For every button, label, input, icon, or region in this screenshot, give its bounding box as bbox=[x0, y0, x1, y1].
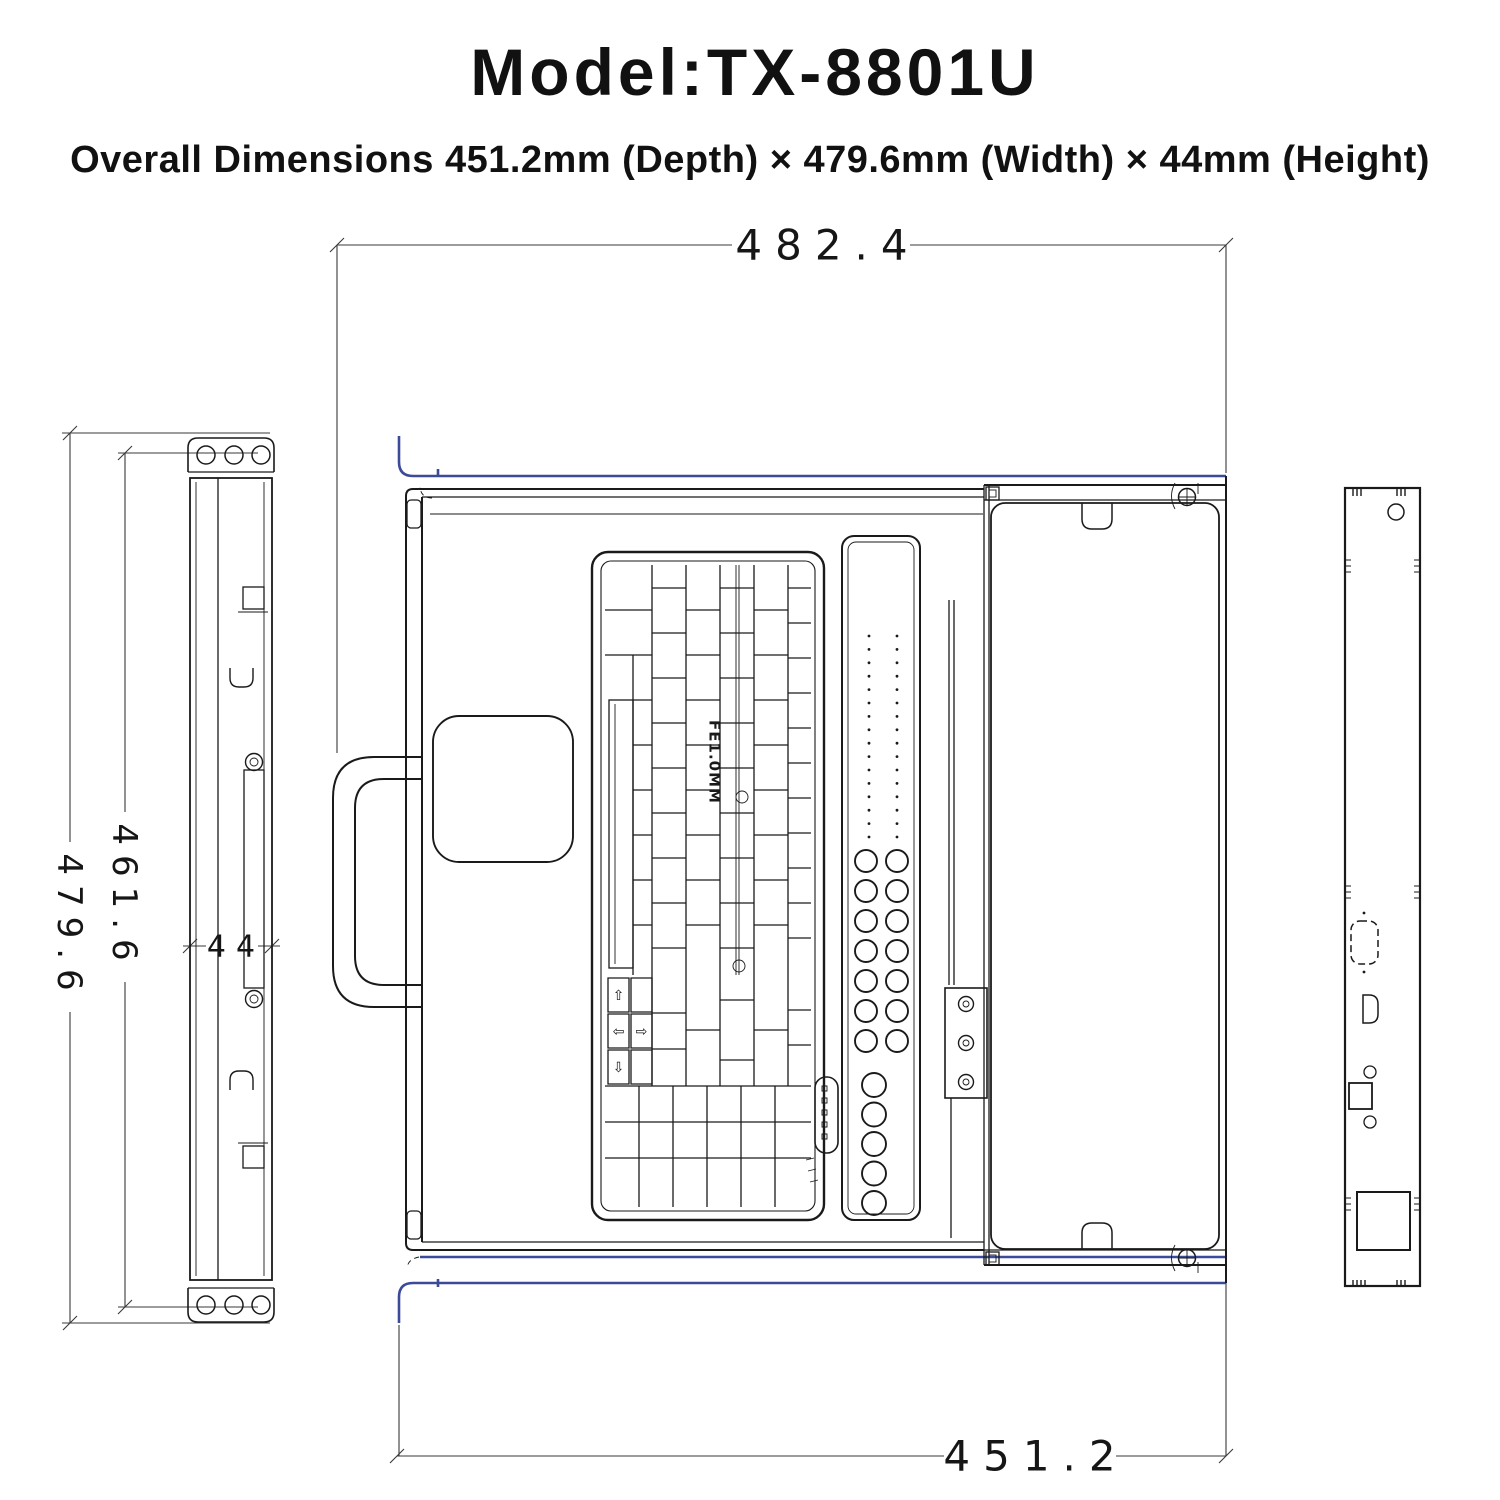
led-dot bbox=[868, 648, 871, 651]
space-bar-key bbox=[609, 700, 633, 968]
dimension-label-height-inner: 461.6 bbox=[104, 823, 144, 970]
select-button[interactable] bbox=[886, 910, 908, 932]
led-dot bbox=[896, 755, 899, 758]
touchpad[interactable] bbox=[433, 716, 573, 862]
select-button[interactable] bbox=[855, 850, 877, 872]
inner-rail-edge bbox=[949, 600, 954, 1238]
led-dot bbox=[868, 822, 871, 825]
handle-inner bbox=[355, 779, 422, 985]
led-dot bbox=[868, 782, 871, 785]
bracket-bolt-center bbox=[963, 1079, 969, 1085]
panel-outer bbox=[842, 536, 920, 1220]
select-button[interactable] bbox=[886, 970, 908, 992]
dimension-line bbox=[337, 245, 1226, 753]
slide-rail-bottom bbox=[399, 1283, 1226, 1323]
dimension-label-depth: 451.2 bbox=[943, 1432, 1128, 1481]
dimension-label-width: 482.4 bbox=[735, 221, 920, 270]
led-dot bbox=[896, 635, 899, 638]
panel-inner bbox=[848, 542, 914, 1214]
led-dot bbox=[868, 742, 871, 745]
arrow-left-key-icon: ⇦ bbox=[613, 1024, 625, 1040]
select-button[interactable] bbox=[855, 1000, 877, 1022]
osd-button[interactable] bbox=[862, 1073, 886, 1097]
led-dot bbox=[868, 755, 871, 758]
led-dot bbox=[896, 702, 899, 705]
dimension-width-482: 482.4 bbox=[330, 221, 1233, 753]
hdmi-port[interactable] bbox=[1363, 995, 1378, 1023]
select-button[interactable] bbox=[855, 970, 877, 992]
led-dot bbox=[896, 742, 899, 745]
slide-screw-center bbox=[250, 995, 258, 1003]
port-mark bbox=[1363, 912, 1366, 915]
select-button[interactable] bbox=[886, 1030, 908, 1052]
tray-cover-joint bbox=[984, 485, 989, 1265]
bracket-bolt bbox=[959, 1036, 974, 1051]
led-dot bbox=[868, 661, 871, 664]
led-control-panel bbox=[842, 536, 920, 1220]
front-latch-tab bbox=[407, 1211, 421, 1239]
led-dot bbox=[896, 688, 899, 691]
bracket-bolt bbox=[959, 1075, 974, 1090]
cover-panel bbox=[991, 503, 1219, 1249]
rear-hole bbox=[1388, 504, 1404, 520]
led-dot bbox=[896, 782, 899, 785]
tray-edge-inner-line bbox=[422, 497, 984, 1242]
slide-screw bbox=[246, 991, 263, 1008]
led-dot bbox=[896, 836, 899, 839]
dimension-height-461: 461.6 bbox=[104, 446, 258, 1314]
key-grid-lines bbox=[605, 565, 811, 1207]
rail-bracket bbox=[945, 988, 987, 1098]
front-latch-tab bbox=[407, 500, 421, 528]
select-button[interactable] bbox=[855, 880, 877, 902]
cover-screw-square-inner bbox=[989, 490, 996, 497]
select-button[interactable] bbox=[855, 940, 877, 962]
arrow-down-key-icon: ⇩ bbox=[613, 1060, 625, 1076]
cover-screw-square bbox=[986, 1252, 999, 1265]
select-button[interactable] bbox=[886, 850, 908, 872]
led-dot bbox=[868, 715, 871, 718]
bottom-mounting-ear bbox=[188, 1288, 274, 1322]
screw-hole bbox=[225, 1296, 243, 1314]
select-button[interactable] bbox=[886, 880, 908, 902]
dimension-line bbox=[397, 1268, 1226, 1456]
screw-hole bbox=[252, 1296, 270, 1314]
led-dot bbox=[896, 661, 899, 664]
led-indicator-dots bbox=[868, 635, 899, 839]
led-dot bbox=[868, 688, 871, 691]
screw-hole bbox=[197, 1296, 215, 1314]
cover-screw-square bbox=[986, 487, 999, 500]
keyboard-outer-frame bbox=[592, 552, 824, 1220]
screw-hole bbox=[197, 446, 215, 464]
cable-connector bbox=[806, 1077, 838, 1182]
side-body bbox=[190, 478, 272, 1280]
bracket-plate bbox=[945, 988, 987, 1098]
led-dot bbox=[896, 675, 899, 678]
slide-rail-top bbox=[399, 436, 1226, 476]
technical-drawing: Model:TX-8801U Overall Dimensions 451.2m… bbox=[0, 0, 1500, 1500]
page-title: Model:TX-8801U bbox=[470, 35, 1039, 109]
bracket-bolt-center bbox=[963, 1040, 969, 1046]
rail-clip bbox=[230, 1071, 253, 1090]
led-dot bbox=[868, 769, 871, 772]
latch-notch bbox=[243, 587, 264, 609]
rail-clip bbox=[230, 668, 253, 687]
led-dot bbox=[896, 795, 899, 798]
bracket-bolt bbox=[959, 997, 974, 1012]
screw-hole bbox=[252, 446, 270, 464]
rear-panel-body bbox=[1345, 488, 1420, 1286]
handle-outer bbox=[333, 757, 422, 1007]
select-button[interactable] bbox=[855, 1030, 877, 1052]
select-button[interactable] bbox=[886, 1000, 908, 1022]
rear-view bbox=[1345, 488, 1420, 1286]
dimension-line bbox=[62, 433, 270, 1323]
overall-dimensions-subtitle: Overall Dimensions 451.2mm (Depth) × 479… bbox=[70, 139, 1430, 181]
led-dot bbox=[896, 809, 899, 812]
power-inlet[interactable] bbox=[1357, 1192, 1410, 1250]
cover-strip-lines bbox=[984, 500, 1226, 1250]
top-mounting-ear bbox=[188, 438, 274, 472]
side-view bbox=[188, 438, 274, 1322]
led-dot bbox=[868, 836, 871, 839]
osd-buttons[interactable] bbox=[862, 1073, 886, 1215]
osd-button[interactable] bbox=[862, 1162, 886, 1186]
key-separators bbox=[605, 588, 811, 1060]
osd-button[interactable] bbox=[862, 1191, 886, 1215]
usb-port[interactable] bbox=[1349, 1083, 1372, 1109]
thumb-screw bbox=[1364, 1116, 1376, 1128]
select-button[interactable] bbox=[886, 940, 908, 962]
led-dot bbox=[896, 728, 899, 731]
led-dot bbox=[896, 715, 899, 718]
select-button[interactable] bbox=[855, 910, 877, 932]
side-hatch-marks bbox=[1345, 560, 1420, 1210]
dimension-depth-451: 451.2 bbox=[390, 1268, 1233, 1481]
connector-marks bbox=[806, 1158, 818, 1182]
bracket-bolt-center bbox=[963, 1001, 969, 1007]
cover-notch-bottom bbox=[1082, 1223, 1112, 1249]
key-center-line bbox=[736, 565, 739, 975]
dimension-height-479: 479.6 bbox=[49, 426, 270, 1330]
led-dot bbox=[896, 648, 899, 651]
latch-notch bbox=[243, 1146, 264, 1168]
keyboard-screw bbox=[736, 791, 748, 803]
screw-hole bbox=[225, 446, 243, 464]
dimension-thickness-44: 44 bbox=[183, 928, 280, 965]
led-dot bbox=[868, 728, 871, 731]
osd-button[interactable] bbox=[862, 1132, 886, 1156]
arrow-up-key-icon: ⇧ bbox=[613, 988, 625, 1004]
slide-screw bbox=[246, 754, 263, 771]
cover-section bbox=[984, 476, 1226, 1283]
led-dot bbox=[868, 809, 871, 812]
hidden-edge-dashed bbox=[407, 487, 432, 1268]
port-mark bbox=[1363, 971, 1366, 974]
vga-port[interactable] bbox=[1351, 921, 1378, 964]
side-inner-line bbox=[196, 482, 264, 1276]
port-select-buttons[interactable] bbox=[855, 850, 908, 1052]
keyboard-marking-text: FE1.0MM bbox=[706, 720, 724, 804]
top-view: ⇧ ⇦ ⇨ ⇩ FE1.0MM bbox=[333, 436, 1226, 1323]
led-dot bbox=[868, 635, 871, 638]
top-vent-hatch bbox=[1353, 489, 1405, 496]
led-dot bbox=[868, 702, 871, 705]
led-dot bbox=[868, 795, 871, 798]
cover-notch-top bbox=[1082, 503, 1112, 529]
led-dot bbox=[868, 675, 871, 678]
arrow-right-key-icon: ⇨ bbox=[636, 1024, 648, 1040]
keyboard[interactable]: ⇧ ⇦ ⇨ ⇩ FE1.0MM bbox=[592, 552, 824, 1220]
thumb-screw bbox=[1364, 1066, 1376, 1078]
slide-screw-center bbox=[250, 758, 258, 766]
dimension-label-thickness: 44 bbox=[207, 930, 265, 965]
cover-outer-edges bbox=[984, 476, 1226, 1283]
led-dot bbox=[896, 769, 899, 772]
tray-front-outer-edge bbox=[406, 489, 984, 1250]
dimension-label-height-outer: 479.6 bbox=[49, 853, 89, 1000]
led-dot bbox=[896, 822, 899, 825]
osd-button[interactable] bbox=[862, 1103, 886, 1127]
